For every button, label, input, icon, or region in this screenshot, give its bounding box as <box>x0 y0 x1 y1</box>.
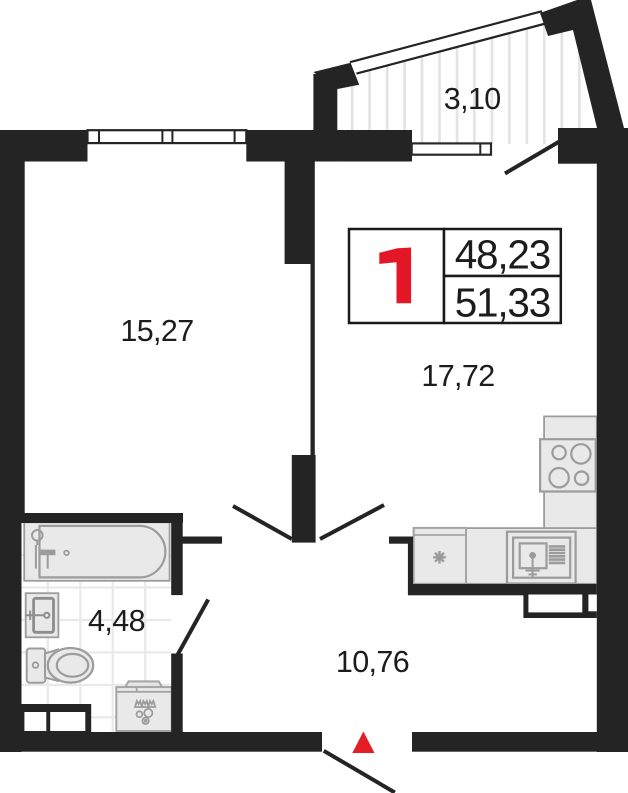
svg-text:48,23: 48,23 <box>455 232 550 278</box>
svg-text:10,76: 10,76 <box>336 645 409 679</box>
svg-text:51,33: 51,33 <box>455 280 550 326</box>
svg-text:4,48: 4,48 <box>88 604 145 638</box>
svg-text:15,27: 15,27 <box>120 314 193 348</box>
svg-text:3,10: 3,10 <box>444 82 501 116</box>
svg-text:17,72: 17,72 <box>421 359 494 393</box>
